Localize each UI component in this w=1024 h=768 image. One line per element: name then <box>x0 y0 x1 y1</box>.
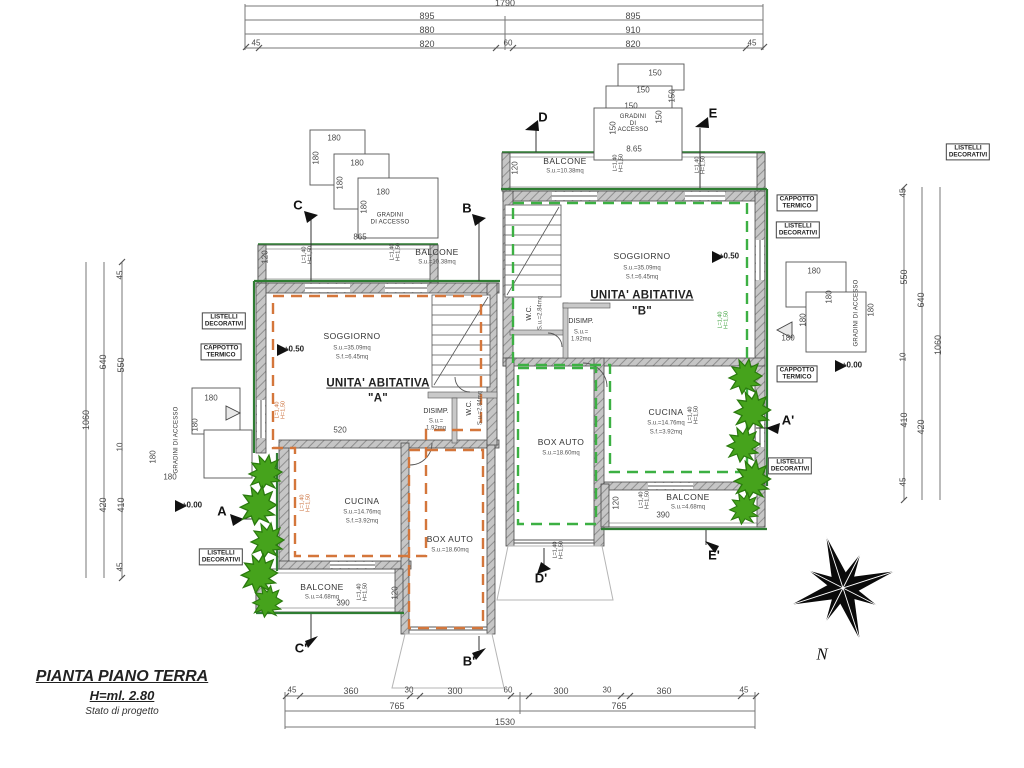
page-title: PIANTA PIANO TERRA <box>24 668 220 686</box>
floor-height-label: H=ml. 2.80 <box>24 688 220 703</box>
floor-plan-drawing <box>0 0 1024 768</box>
trees-left <box>240 455 284 617</box>
garage-aprons <box>392 546 613 688</box>
title-block: PIANTA PIANO TERRA H=ml. 2.80 Stato di p… <box>24 668 220 717</box>
compass-rose <box>775 520 911 656</box>
project-status-label: Stato di progetto <box>24 706 220 717</box>
floor-plan-sheet: 1790895895880910458206082045453603030060… <box>0 0 1024 768</box>
